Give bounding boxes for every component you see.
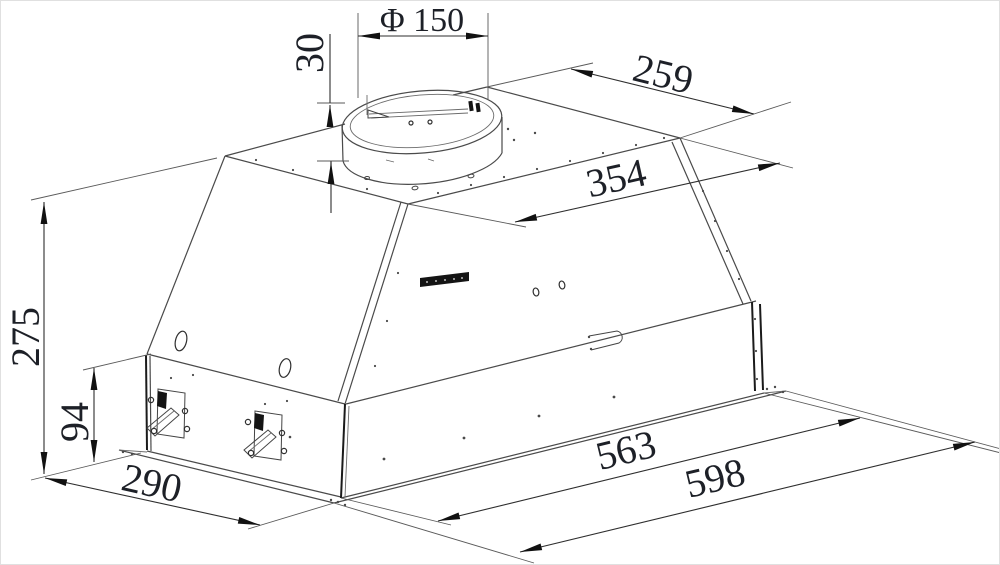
bracket-screw bbox=[248, 450, 253, 455]
hood-technical-drawing: Φ 150 30 259 354 275 94 290 563 bbox=[1, 1, 1000, 565]
box-front-left-corner bbox=[341, 404, 345, 498]
duct-collar bbox=[340, 84, 505, 190]
collar-base-hole bbox=[412, 186, 418, 190]
panel-button bbox=[426, 281, 428, 283]
damper-clip-2 bbox=[475, 103, 480, 112]
left-slope-bottom-edge bbox=[147, 354, 345, 404]
box-left-corner-edge bbox=[146, 355, 147, 450]
bracket-screw bbox=[245, 419, 250, 424]
box-right-corner-strip bbox=[752, 302, 763, 391]
dim-label-duct-diameter: Φ 150 bbox=[380, 2, 464, 39]
panel-button bbox=[444, 279, 446, 281]
collar-base-hole bbox=[468, 174, 474, 178]
panel-button bbox=[461, 277, 463, 279]
bracket-arm-line bbox=[248, 433, 271, 452]
left-slope-left-edge bbox=[147, 156, 225, 354]
box-front-left-corner2 bbox=[345, 406, 349, 497]
handle-slot-outline bbox=[589, 331, 622, 350]
top-face-front-left-ridge bbox=[225, 156, 408, 204]
hood-body-outline bbox=[119, 87, 786, 503]
vent-hole-front-slope bbox=[558, 281, 565, 290]
panel-button bbox=[453, 278, 455, 280]
handle-slot-end bbox=[590, 348, 592, 350]
dimension-duct-diameter: Φ 150 bbox=[358, 2, 488, 100]
slope-corner-strip bbox=[338, 202, 408, 404]
dim-label-overall-width: 598 bbox=[680, 449, 749, 507]
bracket-screw bbox=[151, 428, 156, 433]
dimension-total-height: 275 bbox=[3, 158, 217, 480]
dim-label-top-rear-edge: 259 bbox=[629, 45, 698, 103]
panel-button bbox=[435, 280, 437, 282]
collar-screw-hole bbox=[409, 121, 413, 125]
box-top-front-edge bbox=[346, 301, 756, 404]
dim-label-collar-height: 30 bbox=[287, 33, 332, 73]
mounting-bracket-left bbox=[147, 389, 190, 438]
control-panel bbox=[420, 272, 469, 287]
dim-label-body-height: 94 bbox=[52, 402, 97, 442]
dimension-body-height: 94 bbox=[52, 354, 151, 462]
bracket-screw bbox=[184, 426, 189, 431]
drawing-canvas: Φ 150 30 259 354 275 94 290 563 bbox=[0, 0, 1000, 565]
mounting-bracket-right bbox=[244, 411, 287, 460]
dimension-top-front-edge: 354 bbox=[408, 138, 793, 227]
top-face-back-left-edge bbox=[225, 87, 487, 156]
vent-hole-left-slope bbox=[277, 357, 292, 378]
bracket-slot bbox=[157, 391, 167, 409]
handle-slot-end bbox=[588, 336, 590, 338]
top-face-back-right-edge bbox=[487, 87, 680, 138]
dim-label-total-height: 275 bbox=[3, 307, 48, 367]
bracket-arm-line bbox=[151, 411, 174, 430]
damper-flap-edge bbox=[369, 109, 468, 118]
dim-label-base-depth: 290 bbox=[118, 454, 186, 511]
vent-hole-left-slope bbox=[173, 330, 189, 352]
handle-slot bbox=[588, 331, 622, 350]
vent-hole-front-slope bbox=[532, 288, 539, 297]
dim-label-inner-width: 563 bbox=[591, 421, 660, 479]
collar-wall-mark bbox=[386, 159, 434, 162]
damper-clip-1 bbox=[468, 101, 473, 111]
box-left-corner-edge2 bbox=[150, 356, 151, 451]
dimension-inner-width: 563 bbox=[341, 393, 1000, 525]
collar-inner-rim bbox=[348, 89, 496, 153]
dim-label-top-front-edge: 354 bbox=[582, 149, 650, 206]
bracket-screw bbox=[281, 448, 286, 453]
collar-screw-hole bbox=[428, 120, 432, 124]
collar-outer-rim bbox=[340, 84, 505, 160]
dimension-top-rear-edge: 259 bbox=[487, 45, 791, 138]
bracket-slot bbox=[254, 413, 264, 431]
